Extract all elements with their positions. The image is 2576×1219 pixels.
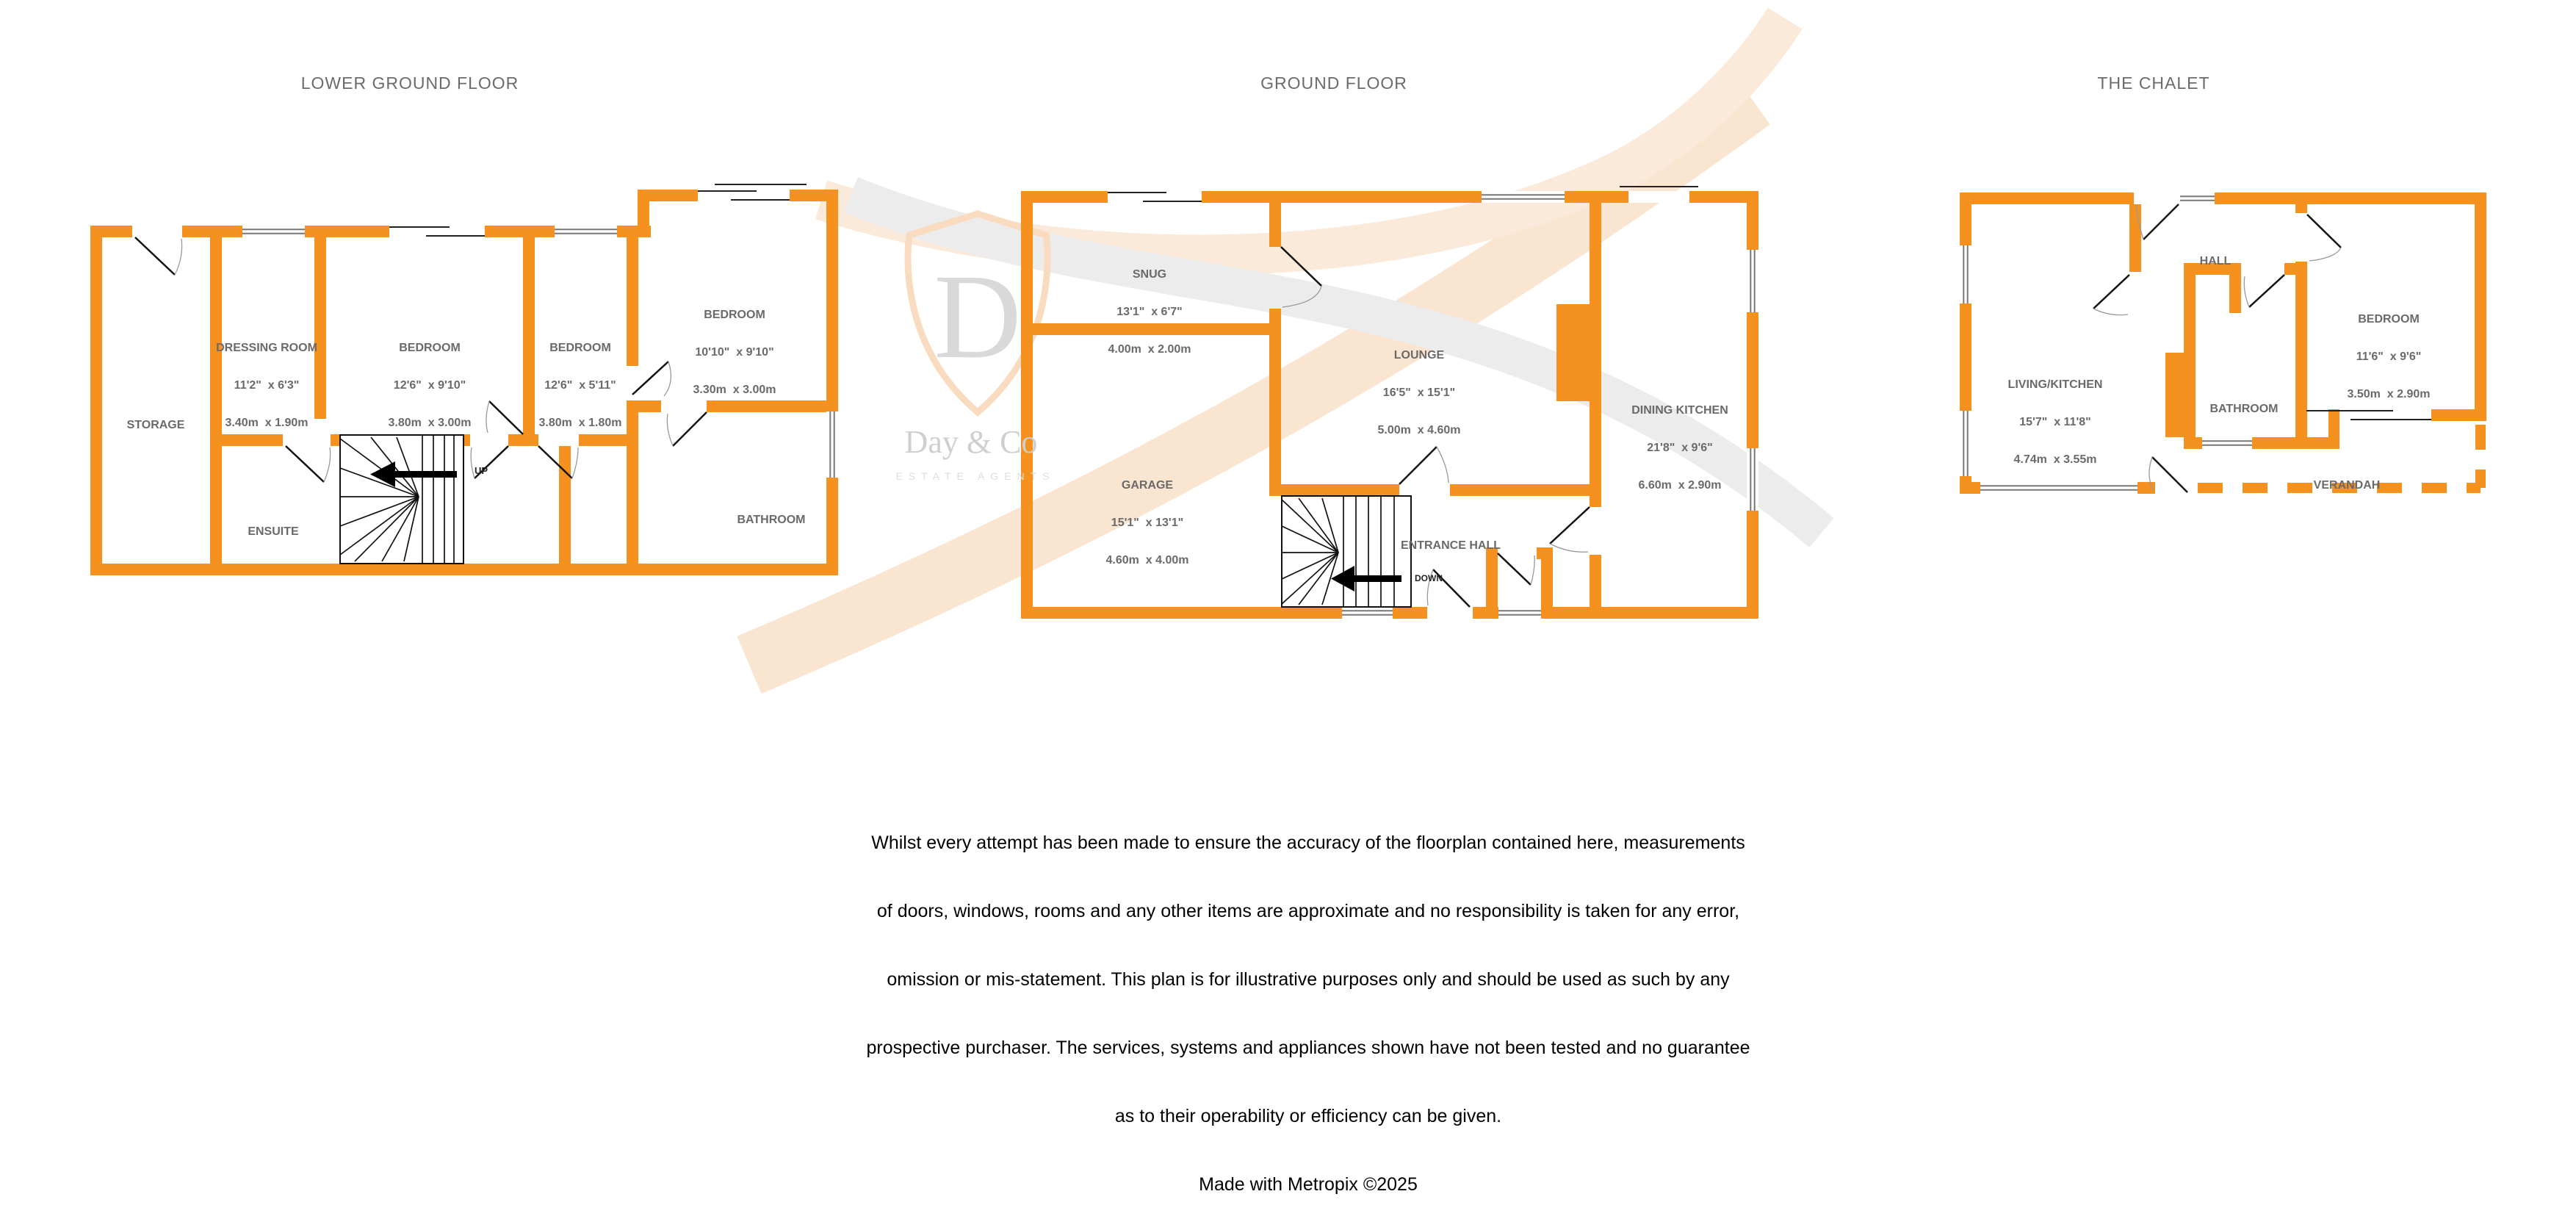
room-label-dressing-room: DRESSING ROOM 11'2" x 6'3" 3.40m x 1.90m <box>216 317 317 442</box>
staircase-ground <box>1282 496 1411 607</box>
disclaimer-line: as to their operability or efficiency ca… <box>866 1105 1750 1128</box>
floorplan-page: { "floors": [ {"id": "lower", "title": "… <box>0 0 2576 913</box>
room-label-garage: GARAGE 15'1" x 13'1" 4.60m x 4.00m <box>1106 454 1189 579</box>
watermark-tagline: ESTATE AGENTS <box>895 470 1055 482</box>
staircase-lower <box>340 435 463 564</box>
disclaimer-line: omission or mis-statement. This plan is … <box>866 968 1750 991</box>
room-label-verandah: VERANDAH <box>2314 454 2381 504</box>
room-label-bathroom-lower: BATHROOM <box>737 489 805 539</box>
room-label-bedroom2: BEDROOM 12'6" x 5'11" 3.80m x 1.80m <box>539 317 622 442</box>
stairs-down-label: DOWN <box>1415 573 1443 583</box>
room-label-living-kitchen: LIVING/KITCHEN 15'7" x 11'8" 4.74m x 3.5… <box>2008 353 2103 478</box>
room-label-bedroom3: BEDROOM 10'10" x 9'10" 3.30m x 3.00m <box>693 284 776 409</box>
room-label-lounge: LOUNGE 16'5" x 15'1" 5.00m x 4.60m <box>1378 324 1461 449</box>
disclaimer-line: of doors, windows, rooms and any other i… <box>866 900 1750 923</box>
metropix-credit: Made with Metropix ©2025 <box>866 1173 1750 1196</box>
disclaimer: Whilst every attempt has been made to en… <box>866 786 1750 1219</box>
floor-title-ground: GROUND FLOOR <box>1260 75 1407 92</box>
watermark-brand: Day & Co <box>905 423 1038 461</box>
room-label-bedroom1: BEDROOM 12'6" x 9'10" 3.80m x 3.00m <box>389 317 472 442</box>
room-label-entrance-hall: ENTRANCE HALL <box>1401 514 1501 564</box>
floorplan-canvas: D <box>0 0 2576 913</box>
room-label-storage: STORAGE <box>127 394 185 444</box>
stairs-up-label: UP <box>475 465 488 476</box>
floor-title-chalet: THE CHALET <box>2097 75 2209 92</box>
watermark-initial: D <box>934 249 1021 384</box>
room-label-hall-chalet: HALL <box>2200 230 2232 280</box>
room-label-dining-kitchen: DINING KITCHEN 21'8" x 9'6" 6.60m x 2.90… <box>1631 379 1728 504</box>
room-label-bathroom-chalet: BATHROOM <box>2209 378 2278 428</box>
floor-title-lower-ground: LOWER GROUND FLOOR <box>301 75 519 92</box>
room-label-bedroom-chalet: BEDROOM 11'6" x 9'6" 3.50m x 2.90m <box>2348 288 2431 413</box>
disclaimer-line: Whilst every attempt has been made to en… <box>866 832 1750 855</box>
room-label-ensuite: ENSUITE <box>248 500 298 550</box>
room-label-snug: SNUG 13'1" x 6'7" 4.00m x 2.00m <box>1108 243 1191 368</box>
disclaimer-line: prospective purchaser. The services, sys… <box>866 1037 1750 1060</box>
